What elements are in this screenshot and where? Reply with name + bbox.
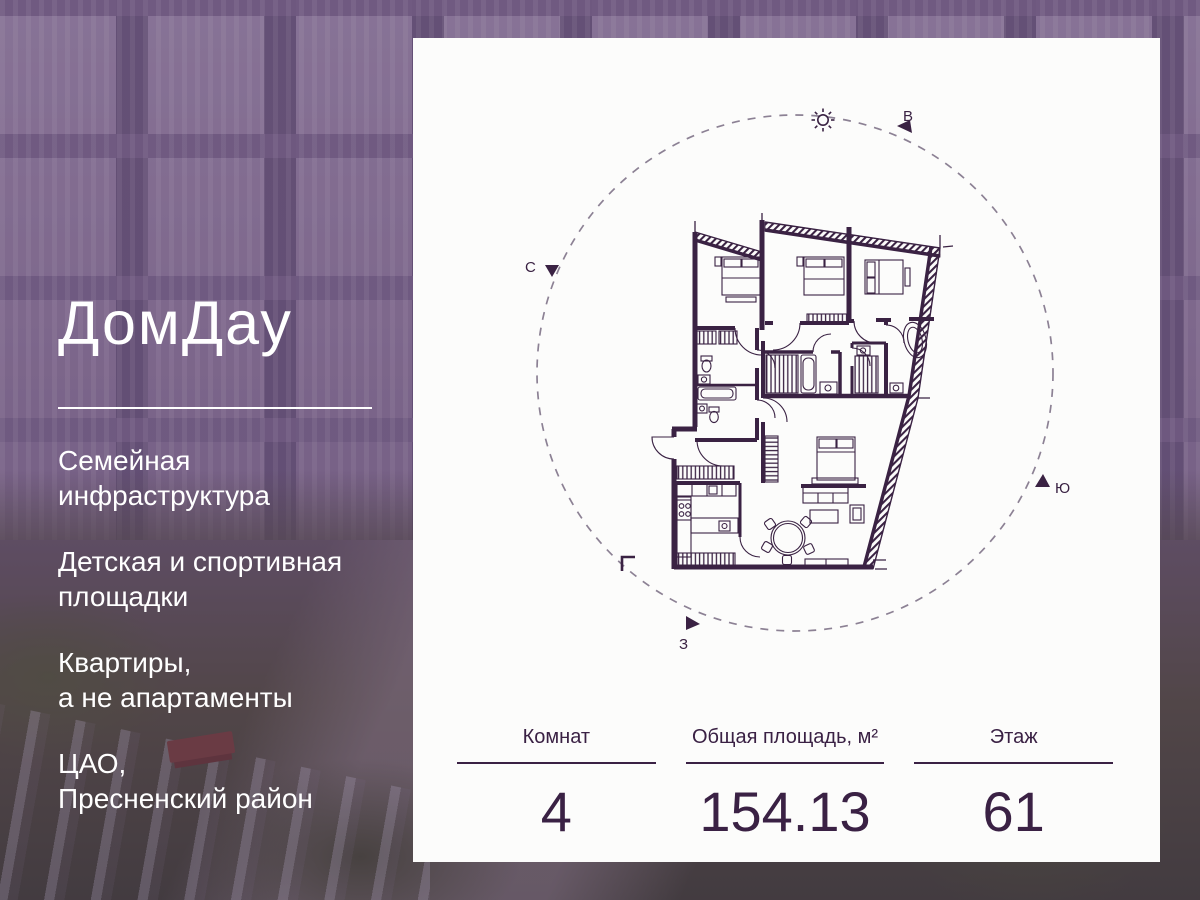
feature-item: Семейная инфраструктура: [58, 443, 418, 513]
compass-north-label: С: [525, 259, 536, 276]
sun-icon: [812, 109, 835, 132]
brand-logo: ДомДау: [58, 288, 293, 358]
stat-floor: Этаж 61: [914, 726, 1113, 844]
compass-south-label: Ю: [1055, 480, 1070, 497]
stat-floor-label: Этаж: [914, 726, 1113, 764]
compass-south-arrow-icon: [1035, 474, 1050, 487]
page-canvas: ДомДау Семейная инфраструктура Детская и…: [0, 0, 1200, 900]
exterior-walls: [672, 213, 953, 569]
floor-plan: [652, 213, 953, 569]
divider-line: [58, 407, 372, 409]
listing-card: С В Ю З: [413, 38, 1160, 862]
compass-north-arrow-icon: [545, 265, 559, 277]
interior-walls: [674, 319, 934, 537]
stat-area: Общая площадь, м² 154.13: [686, 726, 885, 844]
feature-item: Квартиры, а не апартаменты: [58, 645, 418, 715]
compass-west-label: З: [679, 636, 688, 653]
feature-item: ЦАО, Пресненский район: [58, 746, 418, 816]
stat-rooms: Комнат 4: [457, 726, 656, 844]
stat-floor-value: 61: [914, 779, 1113, 844]
compass-west-arrow-icon: [686, 616, 700, 630]
stats-row: Комнат 4 Общая площадь, м² 154.13 Этаж 6…: [457, 726, 1113, 844]
stat-area-value: 154.13: [686, 779, 885, 844]
plan-corner-mark: [622, 557, 635, 571]
stat-rooms-label: Комнат: [457, 726, 656, 764]
stat-area-label: Общая площадь, м²: [686, 726, 885, 764]
feature-list: Семейная инфраструктура Детская и спорти…: [58, 443, 418, 847]
stat-rooms-value: 4: [457, 779, 656, 844]
feature-item: Детская и спортивная площадки: [58, 544, 418, 614]
furniture: [677, 257, 930, 566]
